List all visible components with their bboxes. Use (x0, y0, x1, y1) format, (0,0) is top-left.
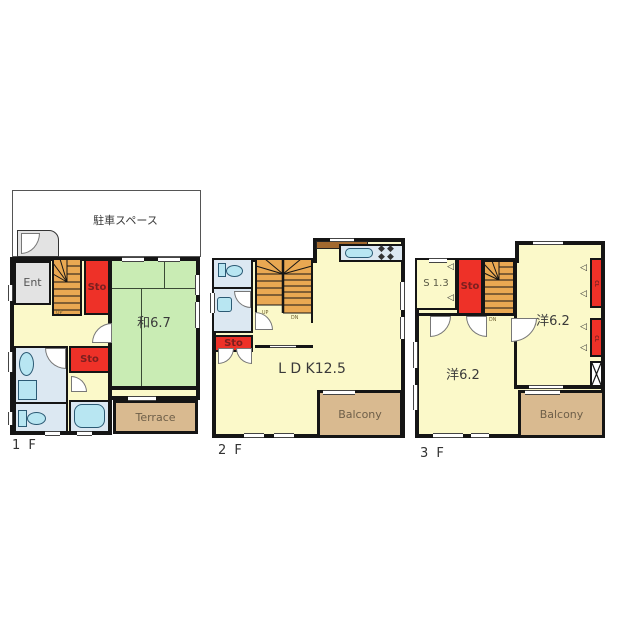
folding-door-icon: ◁ (447, 263, 454, 272)
window (413, 342, 418, 368)
stairs-dn-label: DN (489, 317, 496, 323)
washer-fixture (18, 380, 37, 400)
window (533, 241, 563, 245)
closet-label: CL (593, 280, 599, 287)
floor-label-2f: 2 F (218, 443, 244, 459)
folding-door-icon: ◁ (580, 290, 587, 299)
window (195, 275, 200, 295)
window (122, 257, 144, 262)
sink-fixture (19, 352, 34, 376)
balcony-2f: Balcony (317, 390, 403, 438)
terrace-label: Terrace (135, 411, 175, 424)
window (400, 317, 405, 339)
tatami-room: 和6.7 (108, 257, 200, 390)
staircase-3f (483, 260, 515, 315)
service-room-label: S 1.3 (423, 278, 448, 290)
window (330, 238, 354, 242)
window (8, 285, 13, 301)
floor-label-3f: 3 F (420, 446, 446, 462)
tatami-line (112, 288, 196, 289)
window (471, 433, 489, 438)
window (529, 385, 563, 389)
tatami-room-label: 和6.7 (112, 316, 196, 332)
stairs-up-label: UP (56, 310, 62, 316)
window (429, 258, 447, 263)
window (8, 412, 13, 425)
floor-2-plan: ◆ ◆ ◆ ◆ Sto (210, 235, 412, 463)
bathtub-fixture (74, 404, 105, 428)
floor-1-plan: 駐車スペース 和6.7 Terrace Ent (8, 188, 210, 460)
closet-1: CL (590, 258, 603, 308)
window (244, 433, 264, 438)
storage-label: Sto (461, 281, 480, 292)
window (525, 390, 560, 395)
closet-2: CL (590, 318, 603, 357)
storage-1f-lower: Sto (69, 346, 110, 373)
tatami-line (164, 261, 165, 288)
balcony-label: Balcony (338, 408, 382, 421)
bedroom-lower-label: 洋6.2 (428, 368, 498, 384)
floor-label-1f: 1 F (12, 438, 38, 454)
window (128, 396, 156, 401)
ldk-label: L D K12.5 (247, 361, 377, 378)
toilet-bowl-fixture (27, 412, 46, 425)
folding-door-icon: ◁ (580, 344, 587, 353)
storage-3f: Sto (457, 258, 483, 315)
folding-door-icon: ◁ (580, 264, 587, 273)
floor-3-plan: S 1.3 ◁ ◁ Sto DN 洋6. (413, 238, 615, 466)
stairs-dn-label: DN (291, 315, 298, 321)
floorplan-canvas: 駐車スペース 和6.7 Terrace Ent (0, 0, 618, 644)
window (77, 431, 92, 436)
storage-label: Sto (80, 354, 99, 365)
window (323, 390, 355, 395)
basin-fixture (217, 297, 232, 312)
entrance-room: Ent (14, 261, 51, 305)
balcony-label: Balcony (540, 408, 584, 421)
window (158, 257, 180, 262)
stove-burner-icon: ◆ (378, 253, 385, 262)
parking-label: 駐車スペース (53, 214, 198, 227)
stove-burner-icon: ◆ (387, 253, 394, 262)
window (274, 433, 294, 438)
window (195, 302, 200, 328)
terrace: Terrace (113, 400, 198, 434)
folding-door-icon: ◁ (580, 323, 587, 332)
window (400, 282, 405, 310)
closet-label: CL (593, 335, 599, 342)
toilet-bowl-fixture (226, 265, 243, 277)
folding-door-icon: ◁ (447, 294, 454, 303)
toilet-tank-fixture (18, 410, 27, 427)
window (210, 293, 215, 313)
staircase-1f (52, 258, 82, 316)
ent-label: Ent (23, 276, 41, 289)
tatami-line (141, 289, 142, 386)
storage-1f-upper: Sto (84, 259, 110, 315)
window (8, 352, 13, 372)
opening (270, 345, 296, 348)
kitchen-sink-fixture (345, 248, 373, 258)
storage-label: Sto (88, 282, 107, 293)
window (433, 433, 463, 438)
balcony-3f: Balcony (518, 390, 605, 438)
window (45, 431, 60, 436)
toilet-tank-fixture (218, 263, 226, 277)
window (413, 385, 418, 410)
pipe-space-box (590, 361, 603, 387)
